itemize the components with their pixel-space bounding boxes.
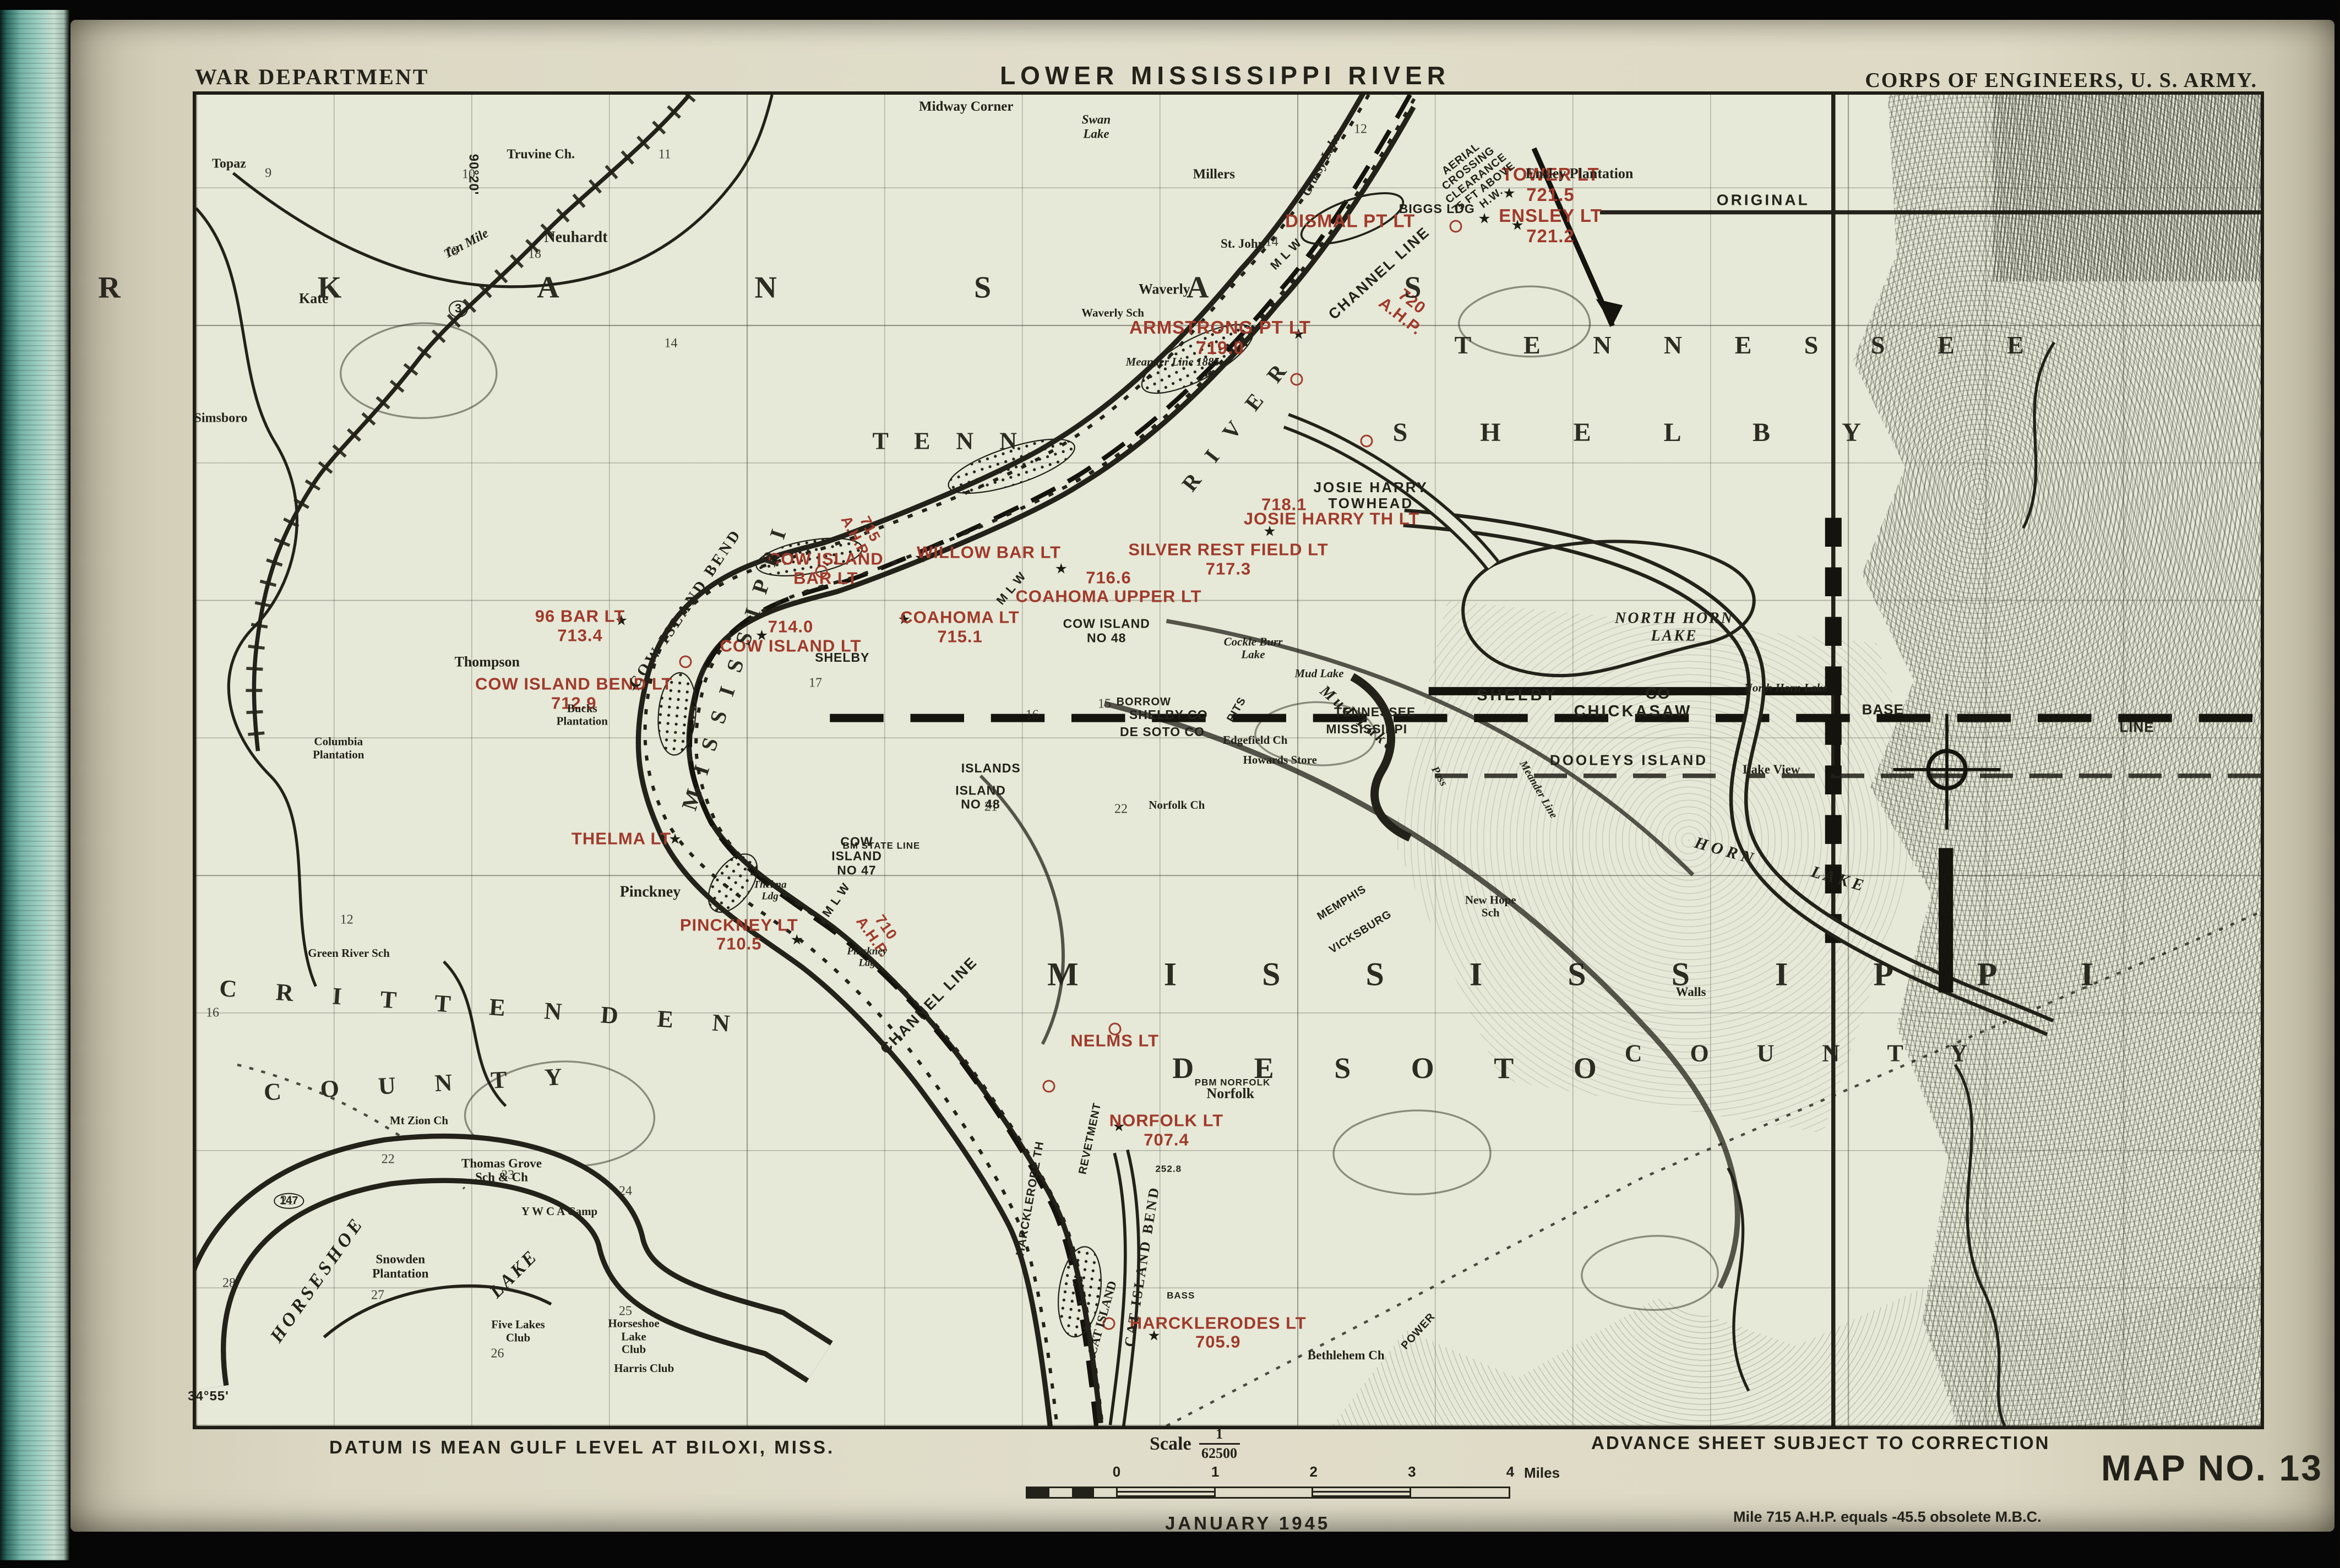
map-label: S H E L B Y [1393, 418, 1894, 448]
light-ring-icon [1042, 1080, 1055, 1093]
map-label: 90°20' [465, 154, 480, 195]
map-label: 716.6 COAHOMA UPPER LT [1015, 568, 1201, 606]
scalebar-subdivided-cell [1027, 1488, 1118, 1497]
section-number: 18 [528, 247, 541, 262]
map-label: Truvine Ch. [507, 147, 575, 162]
section-number: 14 [1265, 235, 1278, 250]
map-label: NORTH HORN LAKE [1615, 610, 1734, 645]
section-number: 15 [1098, 697, 1111, 712]
map-label: North Horn Lake [1744, 682, 1828, 695]
map-label: Y W C A Camp [521, 1205, 597, 1218]
map-label: Columbia Plantation [313, 736, 364, 761]
page-edge-shadow [2334, 0, 2340, 1568]
section-number: 17 [809, 676, 822, 690]
light-ring-icon [1449, 220, 1462, 233]
map-label: Pinckney Ldg [847, 946, 887, 970]
map-label: BASE [1862, 702, 1904, 718]
section-number: 22 [1114, 802, 1128, 817]
map-label: Thomas Grove Sch & Ch [461, 1156, 542, 1185]
map-label: DISMAL PT LT [1285, 211, 1415, 231]
map-label: ISLANDS [961, 761, 1021, 776]
map-label: Midway Corner [919, 99, 1014, 115]
header-agency-right: CORPS OF ENGINEERS, U. S. ARMY. [1865, 68, 2257, 92]
map-label: Edgefield Ch [1223, 734, 1287, 747]
datum-note: DATUM IS MEAN GULF LEVEL AT BILOXI, MISS… [329, 1437, 835, 1458]
header-agency-left: WAR DEPARTMENT [195, 64, 429, 90]
scalebar-ticks: 01234 [1026, 1463, 1510, 1480]
light-ring-icon [1290, 373, 1303, 386]
map-label: Green River Sch [308, 947, 390, 960]
map-label: M I S S I S S I P P I [1047, 956, 2132, 993]
scalebar-tick-label: 3 [1408, 1463, 1416, 1480]
map-label: LINE [2119, 719, 2154, 735]
map-label: Neuhardt [544, 228, 607, 246]
map-label: Cockle Burr Lake [1224, 635, 1283, 661]
map-label: BASS [1167, 1291, 1195, 1301]
map-label: Bucks Plantation [557, 702, 608, 728]
map-label: T E N N [873, 427, 1027, 454]
map-label: C O U N T Y [1625, 1039, 1988, 1066]
section-number: 27 [371, 1288, 384, 1303]
map-label: Mt Zion Ch [390, 1115, 448, 1128]
section-number: 22 [382, 1152, 395, 1167]
map-label: St. John [1221, 237, 1265, 251]
map-label: Millers [1193, 167, 1235, 182]
map-label: Meander Line 1885 [1126, 356, 1220, 369]
section-number: 16 [1026, 707, 1039, 722]
section-number: 24 [619, 1184, 632, 1199]
map-label: 252.8 [1155, 1164, 1182, 1174]
map-label: CO [1645, 685, 1670, 703]
scalebar-tick-label: 1 [1211, 1463, 1219, 1480]
map-label: Five Lakes Club [491, 1319, 545, 1344]
map-area: ★★★★★★★★★★★★★★★★ 91011121318141416121516… [193, 91, 2264, 1429]
section-number: 11 [659, 147, 671, 162]
map-label: ARMSTRONG PT LT 719.0 [1129, 318, 1311, 359]
map-label: Harris Club [614, 1362, 674, 1375]
scalebar-tick-label: 4 [1506, 1463, 1514, 1480]
advance-sheet-note: ADVANCE SHEET SUBJECT TO CORRECTION [1591, 1433, 2050, 1453]
map-label: HARCKLERODES LT 705.9 [1130, 1314, 1307, 1352]
map-label: Topaz [212, 156, 246, 171]
map-label: NELMS LT [1070, 1032, 1159, 1051]
map-label: Mud Lake [1294, 667, 1343, 680]
map-number: MAP NO. 13 [2101, 1447, 2323, 1489]
map-label: Ensley Plantation [1526, 165, 1634, 181]
map-label: BORROW [1117, 695, 1171, 707]
map-label: Lake View [1743, 763, 1800, 777]
scale-statement: Scale 1 62500 [1150, 1427, 1240, 1461]
scale-bar [1026, 1487, 1510, 1499]
map-label: T E N N E S S E E [1455, 331, 2047, 360]
map-label: 96 BAR LT 713.4 [535, 607, 625, 645]
book-page-edges [0, 10, 69, 1560]
scalebar-tick-label: 2 [1309, 1463, 1317, 1480]
map-label: NORFOLK LT 707.4 [1109, 1111, 1223, 1149]
map-label: Thompson [455, 654, 520, 670]
map-label: 3 [449, 301, 467, 318]
section-number: 12 [340, 913, 353, 928]
miles-unit-label: Miles [1524, 1464, 1560, 1482]
map-label: DE SOTO CO [1120, 725, 1205, 739]
map-label: Thelma Ldg [753, 879, 786, 903]
fraction-bar [1199, 1443, 1240, 1445]
map-label: PINCKNEY LT 710.5 [680, 916, 798, 954]
map-label: ORIGINAL [1717, 191, 1810, 208]
map-label: A R K A N S A S [0, 270, 1482, 305]
section-number: 16 [206, 1006, 219, 1021]
scale-word: Scale [1150, 1434, 1191, 1455]
map-label: D E S O T O [1172, 1051, 1623, 1084]
section-number: 9 [265, 166, 271, 181]
map-label: WILLOW BAR LT [917, 543, 1061, 562]
map-label: JOSIE HARRY TH LT [1244, 510, 1420, 529]
map-label: COW ISLAND BAR LT [768, 549, 884, 587]
map-label: Simsboro [194, 411, 248, 426]
map-label: BM STATE LINE [843, 840, 921, 851]
map-label: Norfolk [1206, 1085, 1254, 1101]
map-label: JOSIE HARRY TOWHEAD [1314, 480, 1428, 511]
map-label: ISLAND NO 48 [955, 783, 1006, 812]
section-number: 26 [491, 1347, 504, 1362]
mileage-note: Mile 715 A.H.P. equals -45.5 obsolete M.… [1733, 1509, 2042, 1526]
map-label: Norfolk Ch [1149, 799, 1205, 812]
map-label: Swan Lake [1082, 112, 1111, 141]
scale-fraction: 1 62500 [1199, 1427, 1240, 1461]
section-number: 28 [222, 1276, 236, 1291]
map-label: Waverly Sch [1081, 307, 1144, 320]
map-label: Howards Store [1243, 754, 1317, 767]
map-label: DOOLEYS ISLAND [1550, 752, 1708, 768]
section-number: 12 [1354, 122, 1367, 137]
page-title: LOWER MISSISSIPPI RIVER [1000, 61, 1450, 90]
map-label: SHELBY [815, 651, 869, 665]
map-label: ENSLEY LT 721.2 [1499, 206, 1602, 247]
map-sheet: WAR DEPARTMENT LOWER MISSISSIPPI RIVER C… [70, 20, 2334, 1532]
edition-date: JANUARY 1945 [1165, 1513, 1330, 1534]
map-label: Snowden Plantation [372, 1252, 428, 1281]
map-label: SHELBY [1477, 686, 1558, 704]
map-label: Pinckney [620, 884, 681, 901]
map-label: THELMA LT [572, 829, 671, 848]
light-ring-icon [679, 656, 692, 668]
map-label: CHICKASAW [1574, 702, 1693, 720]
scalebar-tick-label: 0 [1113, 1463, 1120, 1480]
map-label: New Hope Sch [1465, 894, 1516, 919]
map-label: COW ISLAND NO 48 [1063, 617, 1150, 646]
map-label: SHELBY CO [1129, 708, 1208, 722]
light-ring-icon [1361, 434, 1373, 447]
map-label: Bethlehem Ch [1308, 1348, 1385, 1363]
map-label: COAHOMA LT 715.1 [900, 608, 1020, 646]
section-number: 14 [665, 336, 678, 351]
map-label: 34°55' [188, 1389, 229, 1404]
map-label: Horseshoe Lake Club [608, 1317, 659, 1357]
photographed-map-page: WAR DEPARTMENT LOWER MISSISSIPPI RIVER C… [0, 0, 2340, 1568]
